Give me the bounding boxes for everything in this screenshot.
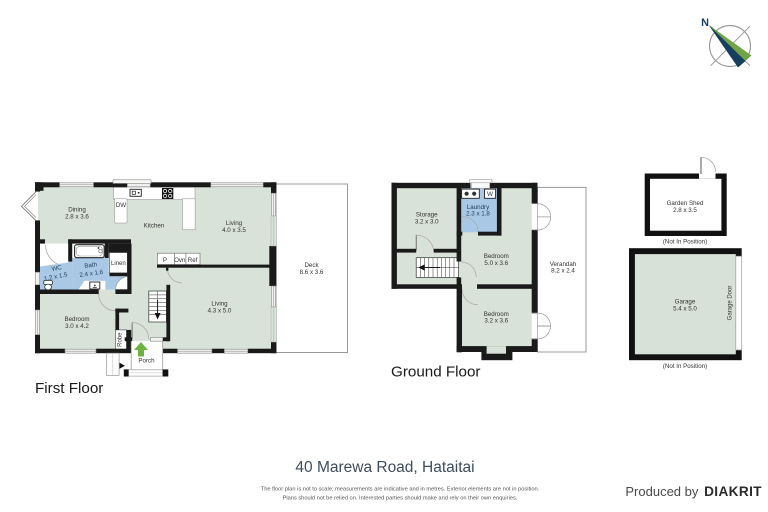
svg-text:Ref: Ref (188, 257, 198, 264)
svg-text:First Floor: First Floor (35, 380, 103, 397)
svg-text:Garage Door: Garage Door (728, 286, 734, 321)
svg-text:Storage: Storage (416, 212, 438, 219)
svg-text:The floor plan is not to scale: The floor plan is not to scale; measurem… (261, 487, 540, 493)
svg-text:3.0 x 4.2: 3.0 x 4.2 (65, 323, 89, 330)
svg-text:DIAKRIT: DIAKRIT (704, 484, 762, 499)
svg-text:3.2 x 3.0: 3.2 x 3.0 (415, 219, 439, 226)
svg-text:DW: DW (116, 202, 126, 209)
svg-text:4.3 x 5.0: 4.3 x 5.0 (208, 308, 232, 315)
svg-text:2.3 x 1.8: 2.3 x 1.8 (466, 211, 490, 218)
svg-text:Garden Shed: Garden Shed (667, 200, 704, 207)
svg-text:2.8 x 3.5: 2.8 x 3.5 (673, 207, 697, 214)
svg-text:Garage: Garage (675, 299, 696, 306)
svg-text:4.0 x 3.5: 4.0 x 3.5 (222, 227, 246, 234)
svg-text:2.8 x 3.6: 2.8 x 3.6 (65, 214, 89, 221)
svg-text:Produced by: Produced by (625, 484, 702, 499)
svg-text:5.0 x 3.6: 5.0 x 3.6 (484, 260, 508, 267)
svg-text:Robe: Robe (118, 332, 124, 347)
svg-text:P: P (163, 257, 167, 264)
svg-text:Porch: Porch (138, 358, 155, 365)
svg-text:(Not In Position): (Not In Position) (663, 363, 707, 370)
svg-text:3.2 x 3.6: 3.2 x 3.6 (484, 318, 508, 325)
svg-text:8.6 x 3.6: 8.6 x 3.6 (300, 269, 324, 276)
svg-text:W: W (487, 191, 494, 198)
svg-text:Kitchen: Kitchen (144, 223, 165, 230)
svg-text:Dining: Dining (68, 207, 86, 214)
svg-text:Linen: Linen (111, 261, 126, 267)
svg-text:Ground Floor: Ground Floor (391, 364, 480, 381)
svg-text:40 Marewa Road, Hataitai: 40 Marewa Road, Hataitai (295, 459, 474, 476)
svg-text:8.2 x 2.4: 8.2 x 2.4 (551, 268, 575, 275)
svg-text:(Not In Position): (Not In Position) (663, 239, 707, 246)
svg-text:Plans should not be relied on.: Plans should not be relied on. Intereste… (283, 496, 518, 502)
svg-text:Living: Living (211, 301, 228, 308)
svg-text:N: N (701, 17, 709, 29)
svg-text:Ovn: Ovn (174, 257, 186, 264)
svg-text:5.4 x 5.0: 5.4 x 5.0 (673, 306, 697, 313)
